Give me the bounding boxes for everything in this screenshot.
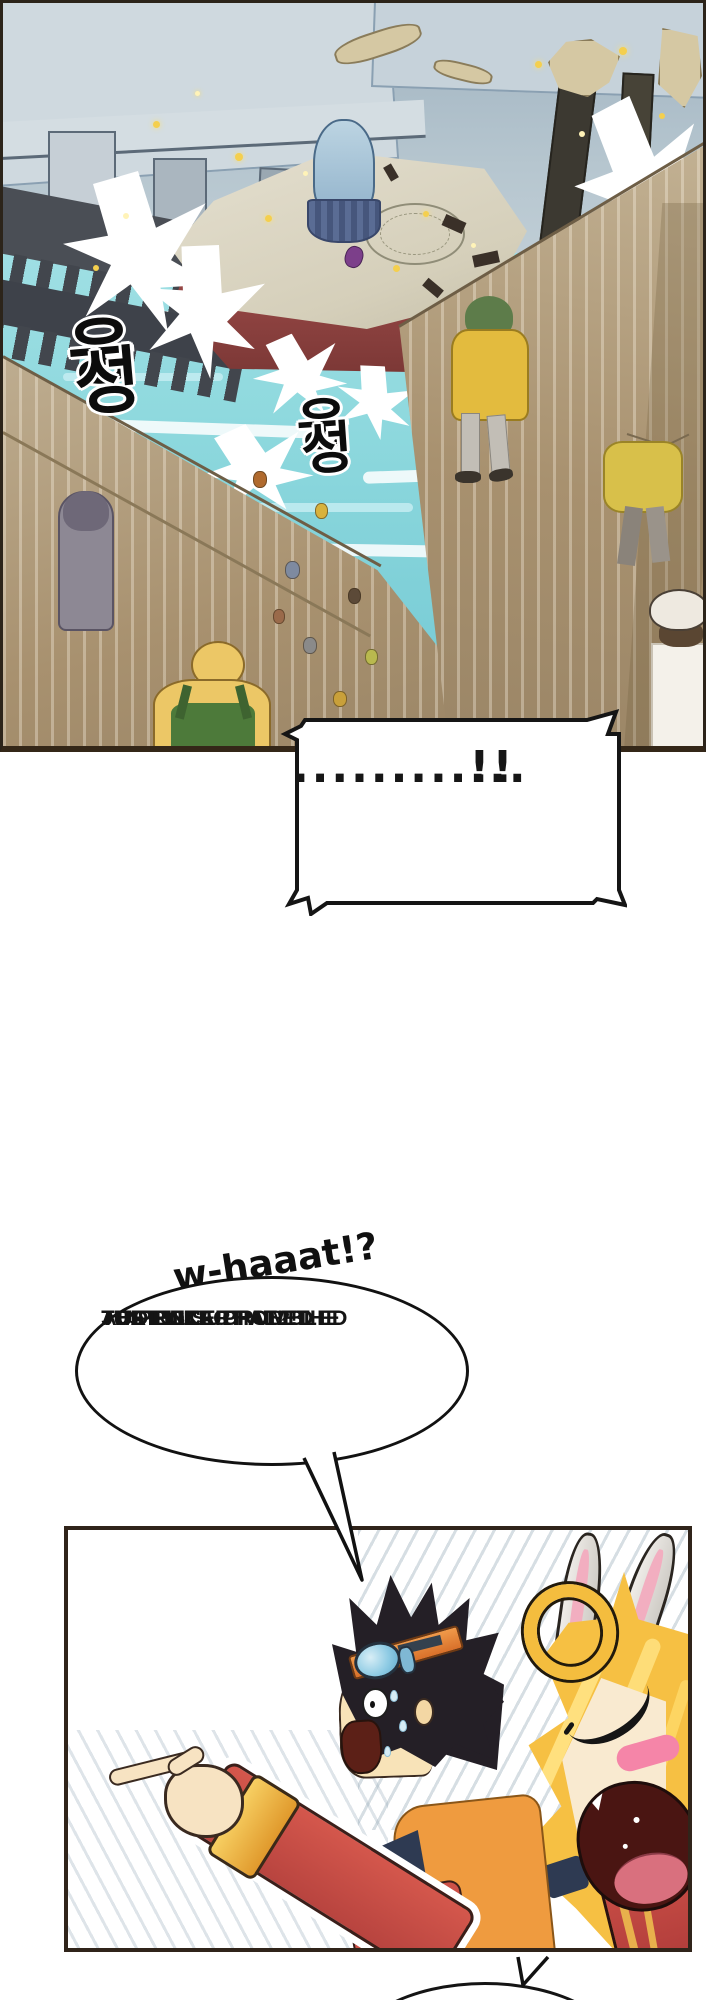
gold-sparkle [579,131,585,137]
dots-speech-bubble [275,708,627,916]
hooded-spectator-hood [63,491,109,531]
hat-spectator-shirt [651,643,706,752]
gold-sparkle [619,47,627,55]
shout-speech-bubble: THE PILLAR THAT IS SUPPOSED TO PROTECT A… [75,1276,469,1466]
gold-sparkle [535,61,542,68]
sfx-char: 성 [72,345,144,419]
gold-sparkle [303,171,308,176]
ear [414,1698,434,1726]
gold-sparkle [195,91,200,96]
bottom-bubble-tail [505,1951,565,1997]
reaction-panel [64,1526,692,1952]
gold-sparkle [423,211,429,217]
sweat-drop [384,1746,391,1757]
background-wall [371,0,706,99]
fang-tooth [585,1791,606,1812]
audience-member [333,691,347,707]
mouth-sparkle [622,1843,628,1849]
gold-sparkle [393,265,400,272]
shout-bubble-tail [290,1448,380,1588]
shocked-eye [362,1688,389,1719]
mouth-sparkle [633,1816,640,1823]
bottom-speech-bubble [345,1982,625,2000]
blue-figure-skirt [307,199,381,243]
audience-member [253,471,267,488]
audience-member [273,609,285,624]
green-hair-spectator-leg [461,413,480,475]
gold-sparkle [93,265,99,271]
sweat-drop [399,1720,407,1732]
gold-sparkle [235,153,243,161]
audience-member [365,649,378,665]
walking-spectator-jacket [603,441,683,513]
audience-member [348,588,361,604]
gold-sparkle [153,121,160,128]
gold-sparkle [659,113,665,119]
arena-panel: 웅성 웅성 [0,0,706,752]
dots-line-2: .........!! [292,742,516,794]
gold-sparkle [123,213,129,219]
audience-member [285,561,300,579]
audience-member [303,637,317,654]
shout-line: JUST LIKE THAT?! [101,1305,298,1331]
gold-sparkle [471,243,476,248]
sfx-char: 성 [300,421,355,478]
sweat-drop [390,1690,398,1702]
audience-member [315,503,328,519]
green-hair-spectator-shoe [455,471,481,483]
green-hair-spectator-jacket [451,329,529,421]
comic-page: 웅성 웅성 ............ .........!! w-haaat!?… [0,0,706,2000]
gold-sparkle [265,215,272,222]
magic-circle-inner [380,213,449,255]
pupil [370,1701,375,1708]
hat-spectator-hat [649,589,706,631]
